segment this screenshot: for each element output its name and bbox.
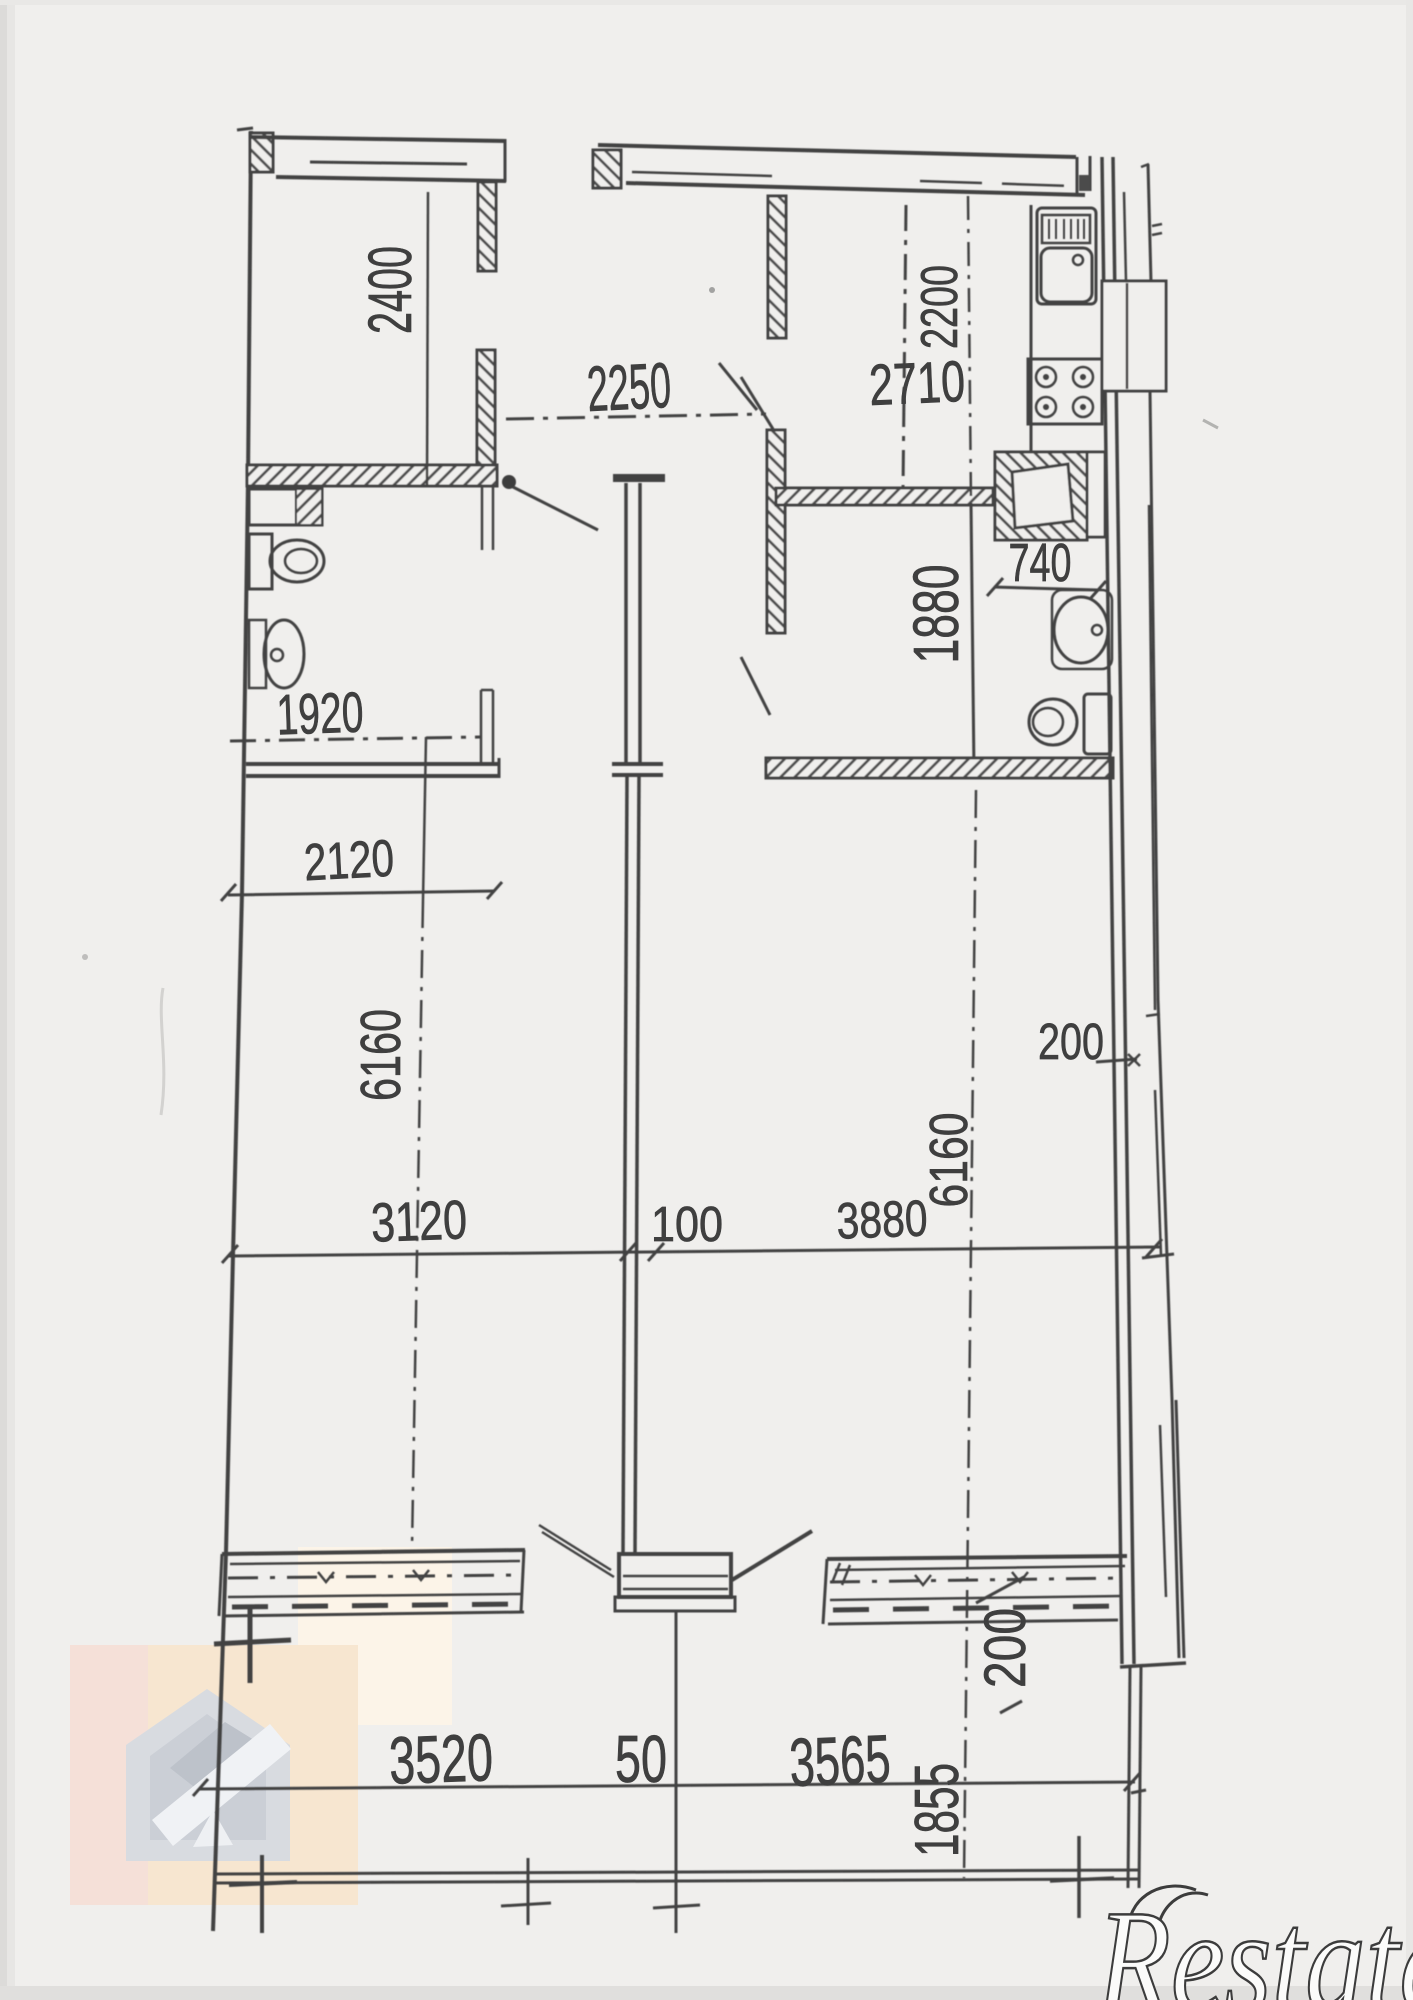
- svg-text:2400: 2400: [356, 246, 424, 334]
- svg-text:200: 200: [1038, 1013, 1104, 1070]
- svg-text:2200: 2200: [911, 265, 969, 349]
- svg-text:740: 740: [1009, 533, 1072, 593]
- svg-text:100: 100: [651, 1198, 723, 1252]
- svg-text:200: 200: [973, 1608, 1038, 1688]
- svg-text:50: 50: [615, 1722, 667, 1797]
- svg-text:1920: 1920: [275, 681, 364, 748]
- svg-text:3120: 3120: [370, 1188, 468, 1253]
- svg-text:2710: 2710: [868, 349, 967, 418]
- svg-text:3880: 3880: [836, 1189, 929, 1249]
- svg-text:1855: 1855: [903, 1763, 972, 1857]
- svg-text:3520: 3520: [388, 1720, 495, 1799]
- svg-text:6160: 6160: [919, 1113, 979, 1208]
- svg-text:3565: 3565: [788, 1721, 892, 1801]
- svg-text:1880: 1880: [900, 565, 972, 664]
- svg-text:6160: 6160: [349, 1009, 413, 1101]
- svg-text:Restate: Restate: [1096, 1880, 1413, 2000]
- svg-text:2120: 2120: [303, 830, 396, 893]
- svg-text:2250: 2250: [585, 349, 673, 425]
